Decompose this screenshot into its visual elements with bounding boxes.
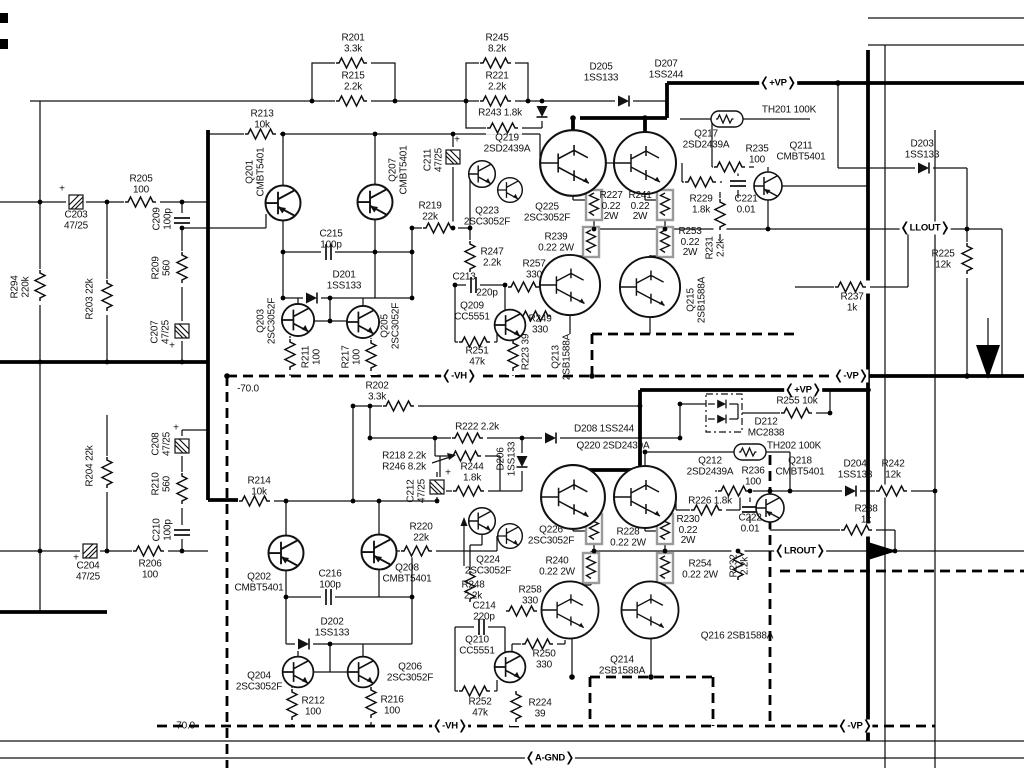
diode-symbol-d207	[615, 94, 633, 108]
lrout-arrow-icon	[868, 542, 897, 560]
transistor-symbol-q225	[498, 178, 523, 203]
resistor-symbol-r201	[335, 57, 371, 70]
transistor-symbol-q214	[541, 581, 598, 638]
transistor-symbol-q205	[347, 306, 379, 338]
transistor-symbol-q219	[540, 130, 606, 196]
resistor-symbol-r213	[244, 128, 280, 141]
resistor-symbol-r250	[521, 638, 557, 651]
sheet-registration-marks	[0, 13, 8, 49]
diode-symbol-d203	[915, 161, 933, 175]
resistor-symbol-r222	[451, 432, 487, 445]
resistor-symbol-r223	[507, 339, 520, 375]
transistor-symbol-q211	[754, 172, 782, 200]
transistor-symbol-q215	[620, 257, 680, 317]
diode-symbol-d212b	[715, 413, 729, 424]
resistor-symbol-r217	[365, 339, 378, 375]
transistor-symbol-q204	[283, 657, 314, 688]
thermistor-symbol-th201	[711, 111, 743, 127]
transistor-symbol-q210	[495, 652, 526, 683]
transistor-symbol-q213	[540, 255, 600, 315]
capacitor-symbol-c216	[321, 588, 335, 606]
resistor-symbol-r212	[286, 688, 299, 724]
resistor-box-r253	[657, 227, 673, 257]
resistor-symbol-r237	[834, 281, 870, 294]
diode-symbol-d206	[515, 453, 529, 471]
diode-symbol-d201	[303, 291, 321, 305]
resistor-symbol-r236	[717, 485, 753, 498]
thermistor-symbol-th202	[734, 444, 766, 460]
r246-pointer-arrow-icon	[432, 457, 450, 463]
resistor-symbol-r202	[382, 400, 418, 413]
resistor-symbol-r248	[464, 570, 477, 606]
transistor-symbol-q226	[498, 524, 523, 549]
resistor-symbol-r215	[335, 95, 371, 108]
resistor-box-r241	[657, 190, 673, 220]
transistor-symbol-q217	[614, 132, 676, 194]
diode-symbol-d205	[535, 103, 549, 121]
transistor-symbol-q216	[621, 581, 678, 638]
resistor-box-r240	[583, 553, 599, 583]
resistor-symbol-r226	[690, 504, 726, 517]
transistor-symbol-q202	[269, 536, 304, 571]
transistor-symbol-q218	[756, 494, 784, 522]
diode-symbol-d208	[542, 431, 560, 445]
capacitor-symbol-c204	[80, 542, 100, 560]
resistor-symbol-r216	[365, 686, 378, 722]
transistor-symbol-q208	[362, 535, 397, 570]
resistor-symbol-r231	[714, 198, 727, 234]
resistor-symbol-r220	[400, 545, 436, 558]
resistor-symbol-r204	[101, 456, 114, 492]
capacitor-symbol-c214	[474, 618, 488, 636]
capacitor-symbol-c213	[466, 276, 480, 294]
resistor-symbol-r224	[510, 690, 523, 726]
resistor-symbol-r294	[34, 269, 47, 305]
resistor-symbol-r258	[505, 605, 541, 618]
capacitor-symbol-c207	[173, 321, 191, 341]
transistor-symbol-q220	[541, 465, 605, 529]
resistor-symbol-r252	[458, 685, 494, 698]
transistor-symbol-q209	[495, 310, 526, 341]
capacitor-symbol-c208	[173, 436, 191, 456]
resistor-symbol-r211	[284, 338, 297, 374]
resistor-symbol-r238	[840, 524, 876, 537]
resistor-symbol-r203	[101, 279, 114, 315]
resistor-symbol-r221	[479, 95, 515, 108]
right-edge-down-arrow-icon	[976, 345, 1000, 379]
capacitor-symbol-c209	[173, 213, 191, 227]
resistor-symbol-r243	[486, 122, 522, 135]
resistor-symbol-r225	[961, 242, 974, 278]
transistor-symbol-q223	[469, 161, 496, 188]
capacitor-symbol-c211	[444, 147, 462, 167]
capacitor-symbol-c203	[66, 193, 86, 211]
wires-power	[0, 50, 1024, 741]
resistor-symbol-r244	[452, 485, 488, 498]
resistor-symbol-r251	[458, 336, 494, 349]
capacitor-symbol-c221	[729, 176, 747, 190]
resistor-box-r227	[586, 190, 602, 220]
schematic-page: R201 3.3kR215 2.2kR245 8.2kR221 2.2kR243…	[0, 0, 1024, 768]
diode-symbol-d212a	[715, 398, 729, 409]
resistor-symbol-r235	[713, 161, 749, 174]
diode-symbol-d202	[295, 637, 313, 651]
resistor-symbol-r229	[684, 176, 720, 189]
transistor-symbol-q203	[282, 304, 314, 336]
resistor-symbol-r214	[238, 495, 274, 508]
resistor-symbol-r205	[124, 196, 160, 209]
transistor-symbol-q206	[348, 657, 379, 688]
resistor-symbol-r210	[176, 472, 189, 508]
resistor-symbol-r245	[479, 57, 515, 70]
capacitor-symbol-c215	[321, 243, 335, 261]
resistor-symbol-r232	[732, 548, 745, 584]
q224-pointer-head	[461, 517, 468, 526]
capacitor-symbol-c212	[428, 477, 446, 497]
resistor-symbol-r255	[780, 407, 816, 420]
capacitor-symbol-c210	[173, 525, 191, 539]
resistor-symbol-r257	[507, 281, 543, 294]
transistor-symbol-q201	[266, 186, 301, 221]
resistor-symbol-r247	[464, 240, 477, 276]
resistor-symbol-r206	[132, 545, 168, 558]
diode-symbol-d204	[842, 484, 860, 498]
resistor-symbol-r242	[875, 485, 911, 498]
schematic-canvas	[0, 0, 1024, 768]
transistor-symbol-q207	[358, 185, 393, 220]
transistor-symbol-q212	[614, 466, 676, 528]
resistor-box-r239	[583, 227, 599, 257]
transistor-symbol-q224	[469, 508, 496, 535]
resistor-symbol-r209	[176, 251, 189, 287]
resistor-box-r254	[657, 553, 673, 583]
